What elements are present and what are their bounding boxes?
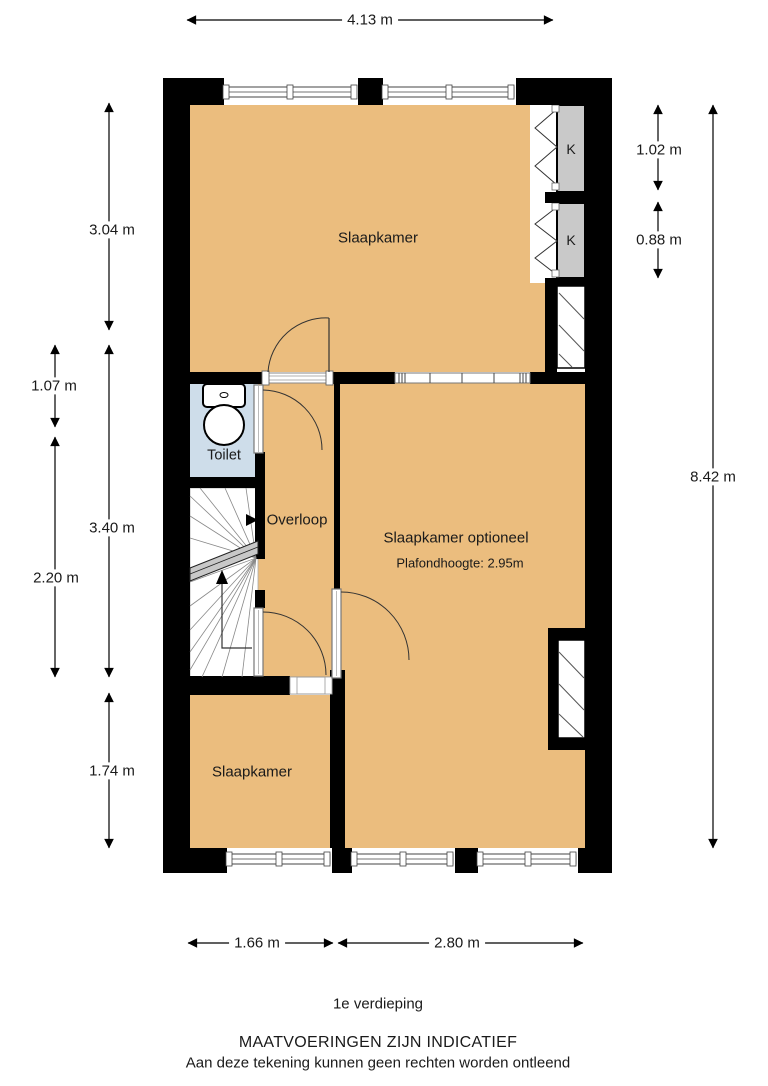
wall-bottom-pier-1 (332, 848, 352, 873)
window-mullion (477, 852, 483, 866)
room-label-bedroom-optional: Slaapkamer optioneel (383, 529, 528, 546)
toilet-fixture (203, 384, 245, 445)
wall-hatch-left (545, 283, 557, 375)
dim-label-closet-1: 1.02 m (631, 141, 687, 158)
dim-label-bottom-right: 2.80 m (429, 934, 485, 951)
closet-k2-doorpost-bottom (552, 270, 559, 277)
room-fills (190, 105, 585, 848)
window-mullion (324, 852, 330, 866)
wall-bedroom-divider (330, 670, 345, 848)
room-landing (258, 382, 334, 677)
wall-closet-separator (545, 192, 585, 203)
wall-bottom-right (578, 848, 612, 873)
window-mullion (508, 85, 514, 99)
closet-k2-doorpost-top (552, 203, 559, 210)
room-label-ceiling-height: Plafondhoogte: 2.95m (396, 557, 523, 572)
dim-label-right-total: 8.42 m (685, 468, 741, 485)
dim-label-left-landing: 3.40 m (84, 519, 140, 536)
door-bedroom-top-post (262, 371, 269, 385)
window-mullion (226, 852, 232, 866)
dim-label-bottom-left: 1.66 m (229, 934, 285, 951)
door-bedroom-top-track (265, 373, 329, 383)
wall-top-pier (358, 78, 383, 105)
window-mullion (351, 85, 357, 99)
dim-label-left-toilet: 1.07 m (26, 377, 82, 394)
room-label-toilet: Toilet (207, 448, 241, 465)
wall-bedroom-bottom-top (163, 676, 290, 695)
room-label-bedroom-top: Slaapkamer (338, 229, 418, 246)
floor-title: 1e verdieping (333, 995, 423, 1012)
toilet-flush-button (220, 393, 228, 398)
room-label-closet-1: K (566, 141, 575, 157)
disclaimer-line-1: MAATVOERINGEN ZIJN INDICATIEF (239, 1034, 517, 1052)
window-mullion (525, 852, 531, 866)
floorplan-page: 4.13 m 3.04 m 1.07 m 3.40 m 2.20 m 1.74 … (0, 0, 768, 1086)
wall-mid-3 (530, 372, 585, 384)
closet-k1-doorpost-bottom (552, 183, 559, 190)
wall-toilet-bottom (190, 477, 265, 488)
dim-label-left-bedroom-bottom: 1.74 m (84, 762, 140, 779)
window-mullion (287, 85, 293, 99)
disclaimer-line-2: Aan deze tekening kunnen geen rechten wo… (186, 1054, 570, 1071)
room-label-closet-2: K (566, 232, 575, 248)
dim-label-closet-2: 0.88 m (631, 231, 687, 248)
doorway-bedroom-bottom-post (290, 677, 297, 694)
window-mullion (400, 852, 406, 866)
dim-label-top-width: 4.13 m (342, 11, 398, 28)
window-mullion (276, 852, 282, 866)
window-mullion (570, 852, 576, 866)
dim-label-left-bedroom-top: 3.04 m (84, 221, 140, 238)
wall-bottom-left (163, 848, 227, 873)
door-bedroom-top-post (326, 371, 333, 385)
window-mullion (446, 85, 452, 99)
wall-landing-right-thin (334, 382, 340, 589)
dim-label-left-stairs: 2.20 m (28, 569, 84, 586)
wall-left (163, 78, 190, 873)
doorway-bedroom-bottom-post (325, 677, 332, 694)
window-mullion (223, 85, 229, 99)
window-mullion (447, 852, 453, 866)
room-bedroom-optional (340, 382, 585, 848)
wall-bottom-pier-2 (455, 848, 478, 873)
wall-mid-1 (190, 372, 265, 384)
toilet-bowl (204, 405, 244, 445)
window-mullion (351, 852, 357, 866)
closet-k1-doorpost-top (552, 105, 559, 112)
room-label-bedroom-bottom: Slaapkamer (212, 763, 292, 780)
room-label-landing: Overloop (267, 511, 328, 528)
window-mullion (382, 85, 388, 99)
wall-landing-left-lower (255, 590, 265, 608)
wall-right (585, 78, 612, 873)
